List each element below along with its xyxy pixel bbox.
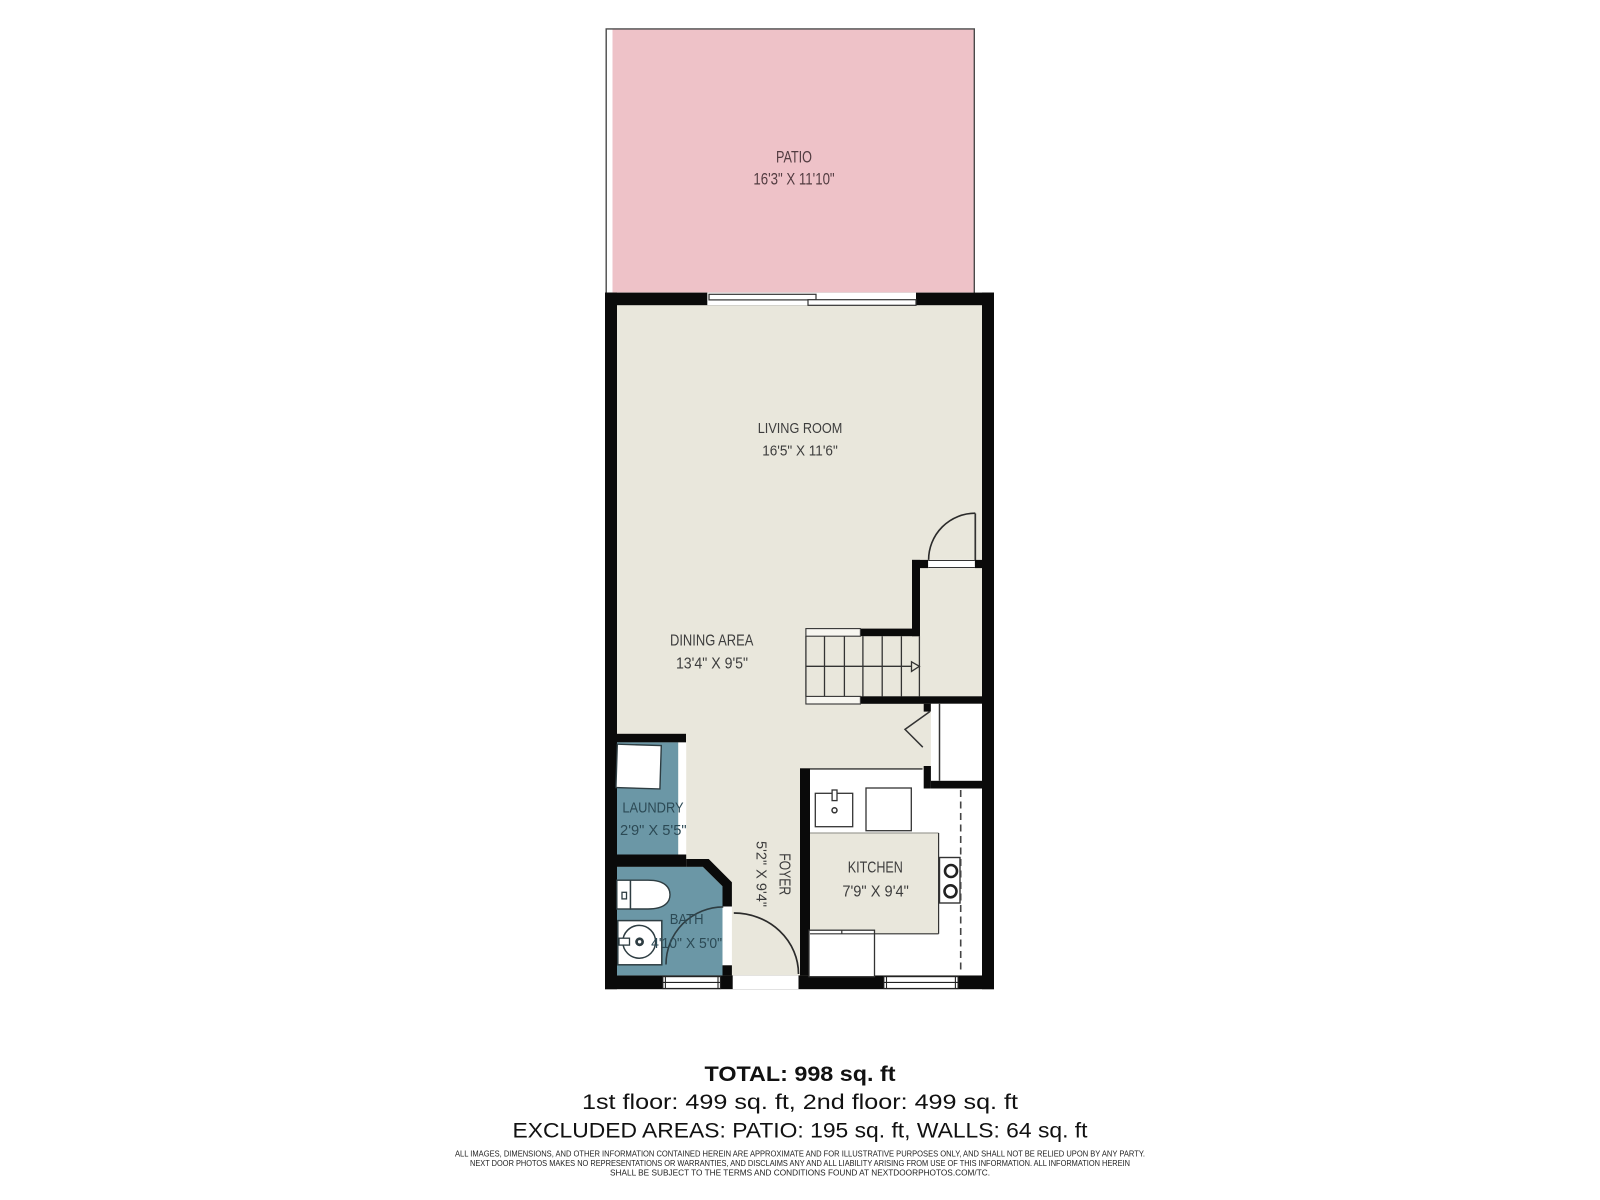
svg-text:ALL IMAGES, DIMENSIONS, AND OT: ALL IMAGES, DIMENSIONS, AND OTHER INFORM… (455, 1149, 1145, 1159)
svg-text:4'10" X 5'0": 4'10" X 5'0" (651, 935, 722, 952)
svg-text:LIVING ROOM: LIVING ROOM (758, 420, 843, 437)
svg-text:BATH: BATH (670, 911, 704, 928)
svg-text:2'9" X 5'5": 2'9" X 5'5" (620, 822, 687, 839)
svg-text:EXCLUDED AREAS: PATIO: 195 sq.: EXCLUDED AREAS: PATIO: 195 sq. ft, WALLS… (513, 1120, 1088, 1143)
svg-text:PATIO: PATIO (776, 147, 812, 166)
svg-text:NEXT DOOR PHOTOS MAKES NO REPR: NEXT DOOR PHOTOS MAKES NO REPRESENTATION… (470, 1158, 1130, 1168)
svg-text:DINING AREA: DINING AREA (670, 632, 754, 649)
svg-text:5'2" X 9'4": 5'2" X 9'4" (753, 841, 770, 907)
svg-text:1st floor: 499 sq. ft, 2nd flo: 1st floor: 499 sq. ft, 2nd floor: 499 sq… (582, 1091, 1018, 1114)
svg-text:SHALL BE SUBJECT TO THE TERMS: SHALL BE SUBJECT TO THE TERMS AND CONDIT… (610, 1168, 990, 1178)
svg-text:16'3" X 11'10": 16'3" X 11'10" (753, 170, 834, 188)
svg-text:FOYER: FOYER (776, 853, 793, 895)
svg-text:7'9" X 9'4": 7'9" X 9'4" (842, 884, 909, 901)
svg-text:LAUNDRY: LAUNDRY (622, 800, 683, 817)
svg-text:KITCHEN: KITCHEN (848, 860, 903, 877)
svg-text:13'4" X 9'5": 13'4" X 9'5" (676, 656, 748, 673)
svg-text:16'5" X 11'6": 16'5" X 11'6" (762, 443, 838, 460)
svg-text:TOTAL: 998 sq. ft: TOTAL: 998 sq. ft (705, 1062, 896, 1086)
